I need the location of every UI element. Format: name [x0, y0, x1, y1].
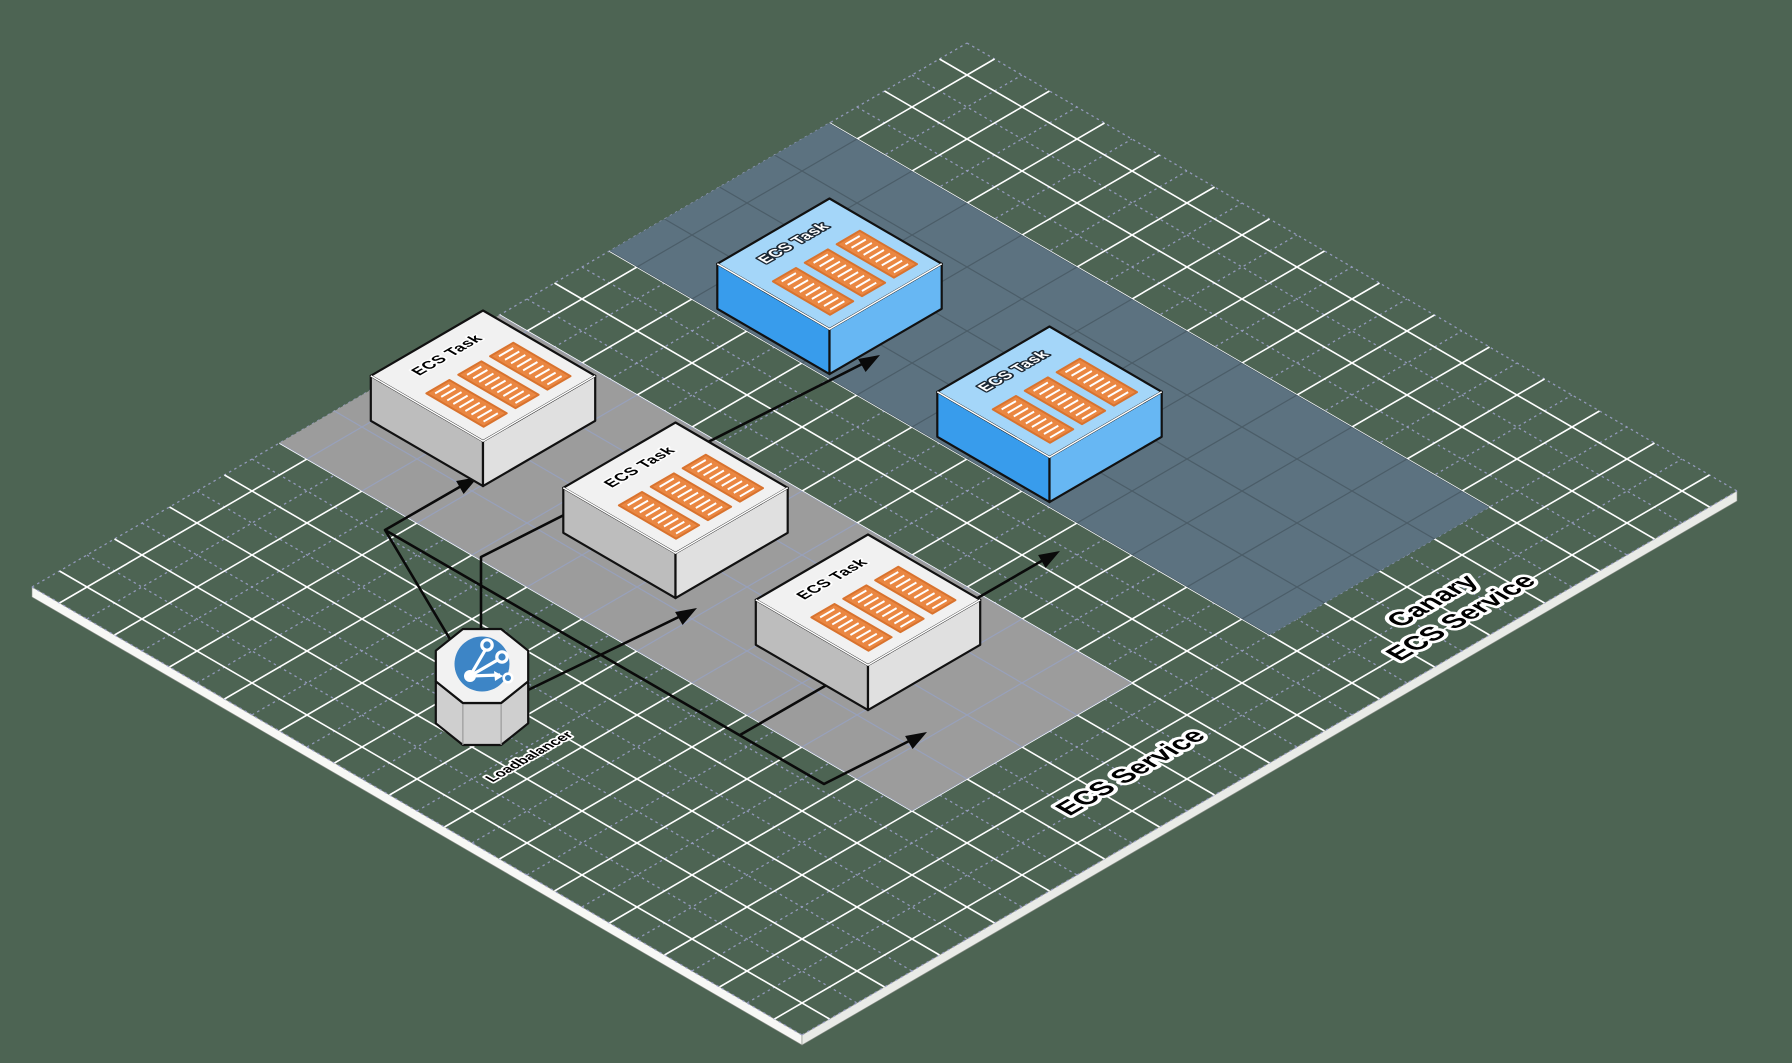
- isometric-diagram-stage: ECS ServiceCanaryECS ServiceECS TaskECS …: [0, 0, 1792, 1063]
- isometric-diagram-canvas: ECS ServiceCanaryECS ServiceECS TaskECS …: [0, 0, 1792, 1063]
